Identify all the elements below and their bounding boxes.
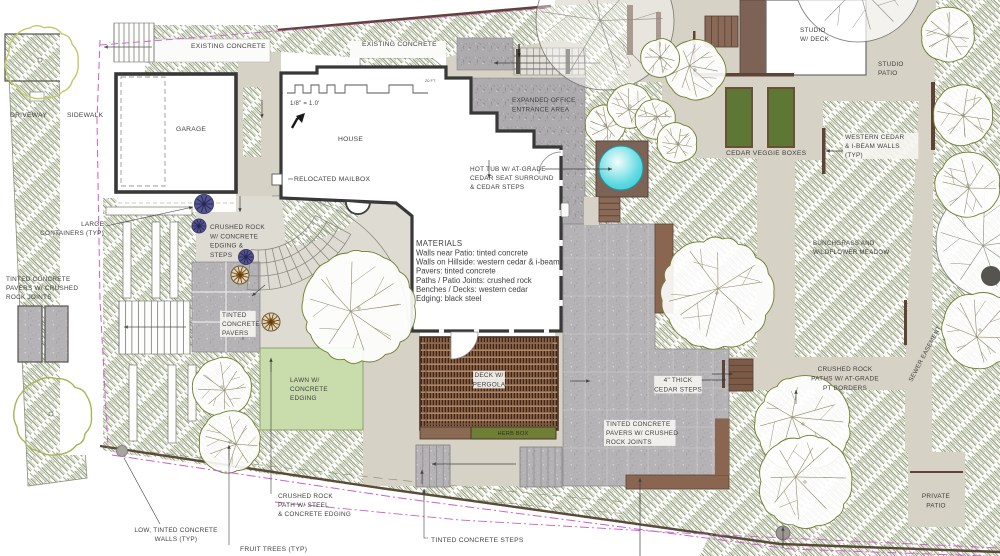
svg-text:MATERIALS: MATERIALS [416,239,462,248]
svg-text:1/8" = 1.0′: 1/8" = 1.0′ [290,101,320,107]
svg-text:EXISTING CONCRETE: EXISTING CONCRETE [191,43,266,50]
svg-text:EXISTING CONCRETE: EXISTING CONCRETE [362,41,437,48]
svg-text:SIDEWALK: SIDEWALK [67,112,104,119]
svg-text:TINTED CONCRETE STEPS: TINTED CONCRETE STEPS [431,537,524,544]
svg-text:HOUSE: HOUSE [338,136,363,143]
svg-text:DRIVEWAY: DRIVEWAY [10,112,47,119]
svg-text:20 FT: 20 FT [425,78,436,83]
svg-text:GARAGE: GARAGE [176,126,206,133]
svg-text:RELOCATED MAILBOX: RELOCATED MAILBOX [294,176,371,183]
svg-text:CEDAR VEGGIE BOXES: CEDAR VEGGIE BOXES [726,150,807,157]
svg-text:HERB BOX: HERB BOX [498,431,529,437]
svg-text:FRUIT TREES (TYP): FRUIT TREES (TYP) [240,546,307,553]
